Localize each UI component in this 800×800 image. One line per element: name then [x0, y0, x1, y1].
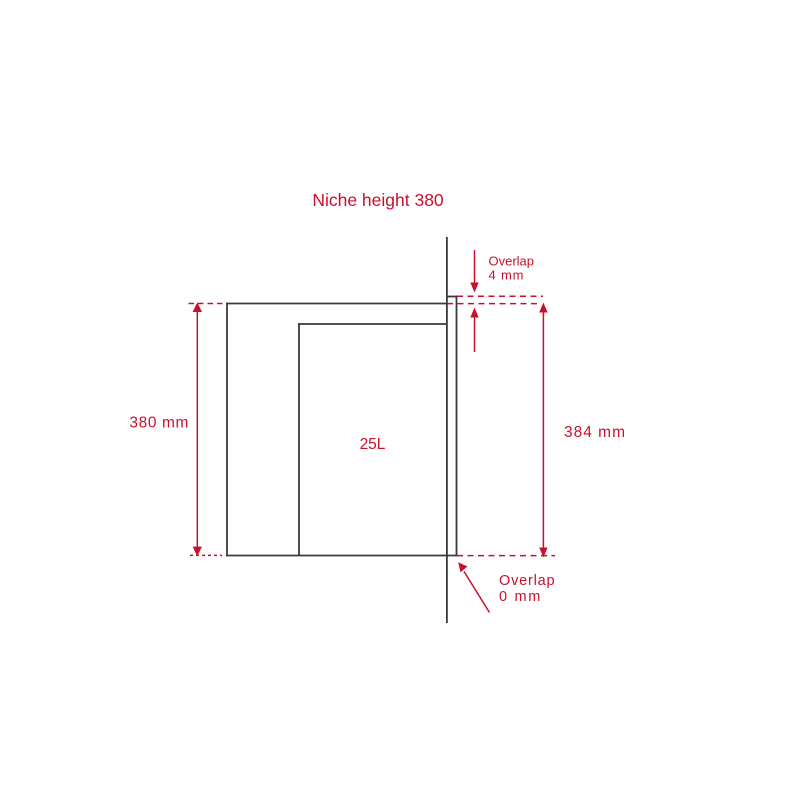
svg-text:Overlap: Overlap: [499, 573, 555, 589]
svg-text:4 mm: 4 mm: [489, 268, 525, 283]
svg-text:380 mm: 380 mm: [129, 415, 189, 432]
svg-text:0 mm: 0 mm: [499, 589, 542, 605]
svg-text:Niche height 380: Niche height 380: [312, 190, 444, 210]
svg-text:384 mm: 384 mm: [564, 424, 626, 441]
svg-text:Overlap: Overlap: [489, 254, 535, 269]
svg-text:25L: 25L: [360, 436, 386, 453]
